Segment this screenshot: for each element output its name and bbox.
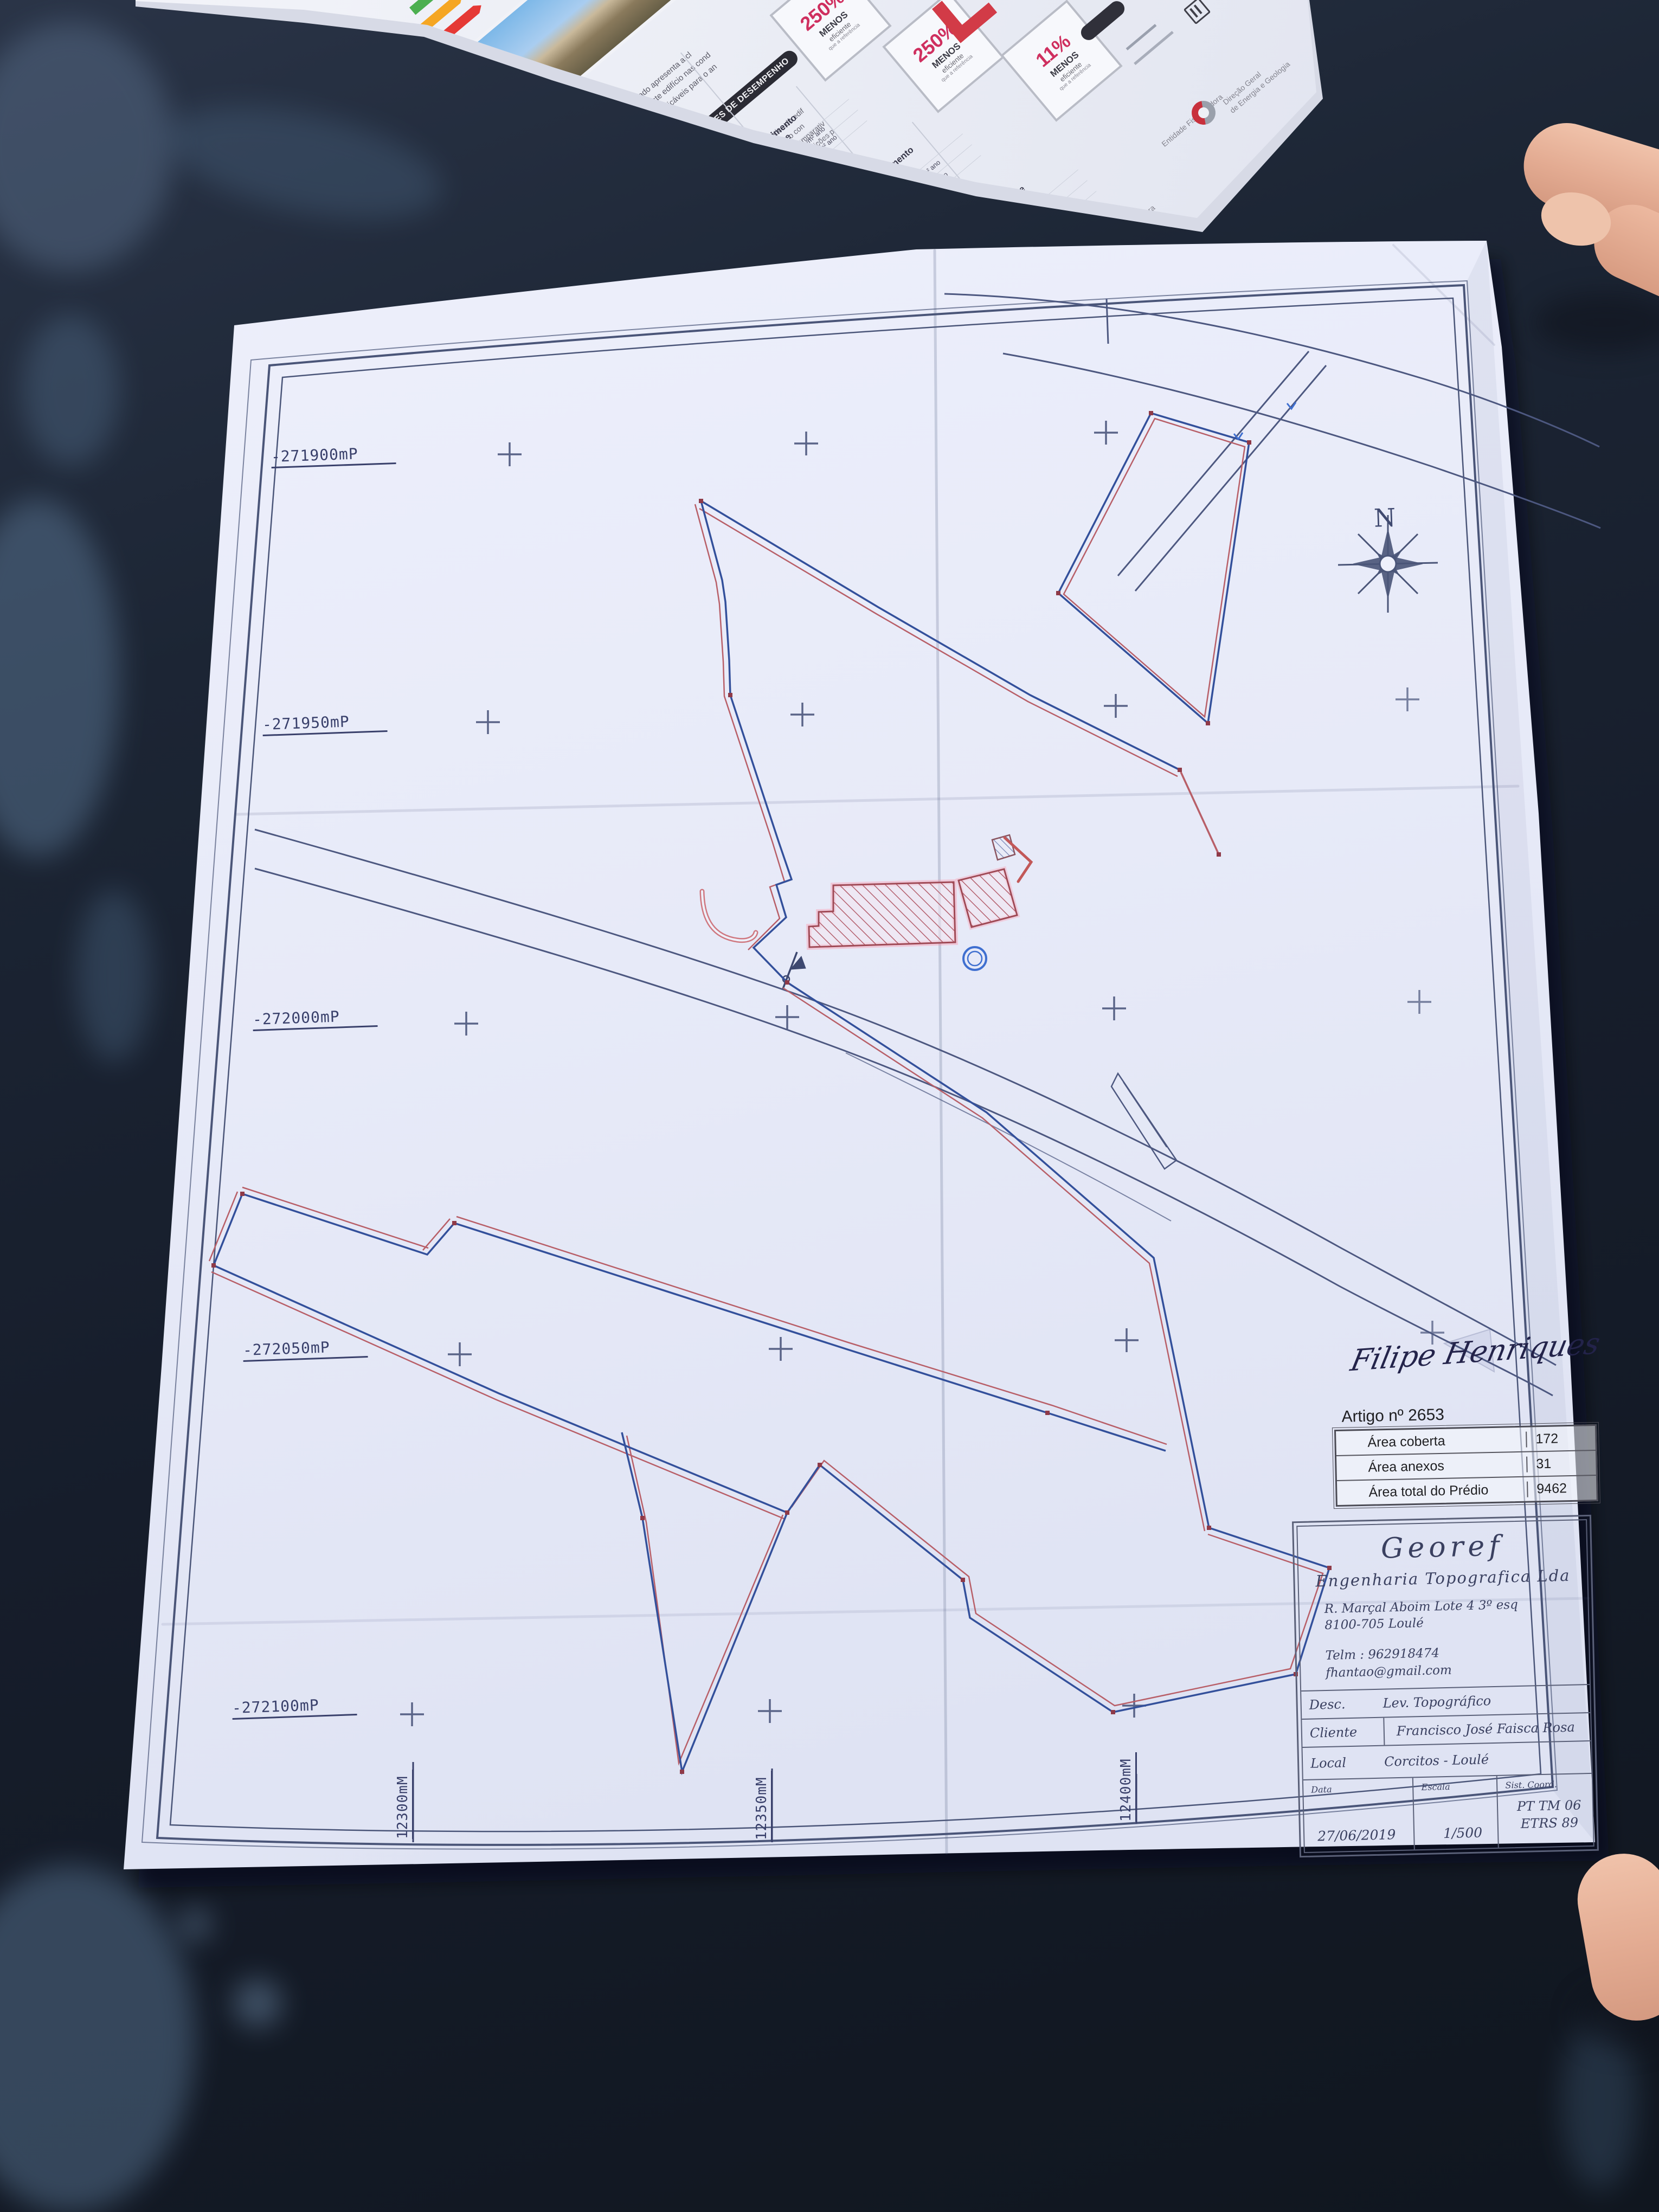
coordinate-label-x: 12400mM xyxy=(1118,1752,1137,1822)
fiscal-entity-label: Entidade Fiscalizadora xyxy=(1160,92,1224,148)
field-value: PT TM 06 ETRS 89 xyxy=(1506,1796,1593,1833)
table-row: Área total do Prédio 9462 xyxy=(1337,1475,1597,1505)
survey-plan-drawing xyxy=(0,0,1659,2212)
area-label: Área coberta xyxy=(1336,1431,1526,1451)
area-label: Área anexos xyxy=(1336,1456,1527,1476)
field-value: Francisco José Faisca Rosa xyxy=(1397,1720,1575,1739)
photo-scene: -271900mP -271950mP -272000mP -272050mP … xyxy=(0,0,1659,2212)
artigo-area-table: Artigo nº 2653 Área coberta 172 Área ane… xyxy=(1334,1403,1598,1507)
company-subtitle: Engenharia Topografica Lda xyxy=(1298,1566,1587,1591)
titleblock-cell-coordsys: Sist. Coord. PT TM 06 ETRS 89 xyxy=(1496,1774,1593,1848)
north-label: N xyxy=(1373,503,1396,532)
building-outline-icon xyxy=(1184,0,1211,24)
area-value: 9462 xyxy=(1527,1480,1597,1497)
company-email: fhantao@gmail.com xyxy=(1326,1660,1589,1680)
coordinate-label-y: -271950mP xyxy=(262,711,387,736)
coordinate-label-y: -272050mP xyxy=(242,1337,368,1362)
area-value: 31 xyxy=(1526,1455,1596,1472)
area-value: 172 xyxy=(1526,1430,1596,1448)
company-phone: Telm : 962918474 xyxy=(1325,1643,1589,1663)
coordinate-label-y: -272000mP xyxy=(252,1006,377,1031)
field-label: Escala xyxy=(1421,1780,1496,1792)
fiscal-entity-name: Direção Geral de Energia e Geologia xyxy=(1221,51,1293,116)
titleblock-cell-date: Data 27/06/2019 xyxy=(1303,1778,1414,1852)
field-value: 27/06/2019 xyxy=(1317,1826,1414,1844)
coord-system-line: PT TM 06 xyxy=(1517,1797,1581,1814)
field-label: Desc. xyxy=(1301,1696,1383,1713)
company-address: 8100-705 Loulé xyxy=(1324,1612,1588,1632)
field-value: Corcitos - Loulé xyxy=(1384,1752,1489,1769)
area-label: Área total do Prédio xyxy=(1337,1481,1527,1501)
title-block: Georef Engenharia Topografica Lda R. Mar… xyxy=(1292,1515,1599,1857)
coordinate-label-x: 12350mM xyxy=(754,1771,773,1840)
divider xyxy=(1383,1718,1385,1745)
field-label: Data xyxy=(1311,1782,1413,1795)
field-label: Local xyxy=(1303,1754,1385,1771)
coordinate-label-y: -272100mP xyxy=(232,1695,357,1720)
certificate-code-lines xyxy=(1126,24,1157,50)
field-label: Sist. Coord. xyxy=(1505,1778,1592,1791)
field-label: Cliente xyxy=(1302,1724,1384,1741)
coordinate-label-x: 12300mM xyxy=(395,1770,414,1839)
titleblock-cell-scale: Escala 1/500 xyxy=(1412,1776,1498,1849)
coord-system-line: ETRS 89 xyxy=(1521,1815,1579,1831)
field-value: Lev. Topográfico xyxy=(1382,1693,1491,1711)
field-value: 1/500 xyxy=(1427,1824,1497,1842)
coordinate-label-y: -271900mP xyxy=(271,443,396,468)
company-name: Georef xyxy=(1298,1528,1587,1567)
